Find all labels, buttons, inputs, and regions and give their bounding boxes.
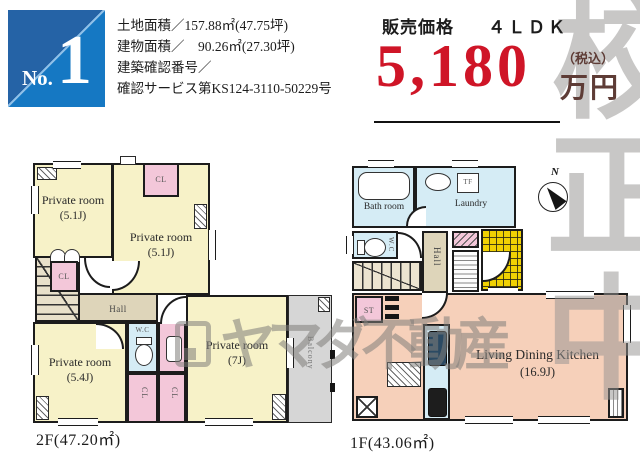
closet-2f-top: CL	[143, 163, 179, 197]
floor-2f-label: 2F(47.20㎡)	[36, 426, 121, 450]
underfloor-storage	[356, 396, 378, 418]
door-arc	[84, 258, 110, 288]
wc-label: W.C	[387, 237, 395, 252]
window	[452, 160, 478, 168]
hall-label: Hall	[432, 247, 442, 267]
closet-2f-mid-1: CL	[127, 373, 158, 423]
toilet-room-1f: W.C	[352, 231, 398, 259]
toilet-icon	[135, 344, 153, 366]
compass-needle	[541, 183, 566, 210]
confirmation-service-no: 確認サービス第KS124-3110-50229号	[117, 78, 332, 99]
closet-label: CL	[52, 272, 76, 281]
floor-plan-1f: Bath room TF Laundry W.C Hall	[345, 160, 637, 428]
price-tax-note: （税込）	[562, 48, 614, 67]
window	[53, 161, 81, 169]
stairs-1f	[352, 261, 422, 291]
room-b-label: Private room (5.1J)	[112, 230, 210, 261]
tf-label: TF	[458, 178, 478, 186]
closet-label: CL	[140, 387, 149, 399]
price-unit: 万円	[560, 66, 620, 106]
folding-door-icon	[385, 296, 399, 323]
st-label: ST	[357, 306, 381, 315]
closet-label: CL	[145, 175, 177, 184]
cabinet	[608, 388, 624, 418]
door-arc	[160, 296, 186, 324]
balcony-tick	[330, 383, 335, 392]
header-divider	[374, 121, 560, 123]
closet-2f-mid-2: CL	[158, 373, 186, 423]
ldk-label: Living Dining Kitchen (16.9J)	[455, 346, 620, 380]
room-d-label: Private room (7J)	[186, 338, 288, 369]
pillar-hatch-b	[194, 204, 207, 229]
pipe-bump	[120, 156, 136, 165]
laundry-label: Laundry	[431, 198, 511, 210]
pillar-hatch-balcony	[318, 297, 330, 312]
balcony-label: Balcony	[306, 336, 315, 370]
pillar-hatch-c	[36, 396, 49, 420]
property-info: 土地面積／157.88㎡(47.75坪) 建物面積／ 90.26㎡(27.30坪…	[117, 15, 332, 99]
washbasin-icon	[166, 336, 182, 362]
refrigerator-space	[387, 362, 421, 387]
toilet-room-2f: W.C	[127, 322, 158, 373]
window	[58, 418, 98, 426]
floor-plan-2f: CL Private room (5.1J) Private room (5.1…	[30, 160, 340, 428]
building-confirmation-no: 建築確認番号／	[117, 57, 332, 78]
badge-number: 1	[57, 26, 92, 96]
shoe-storage	[452, 250, 479, 292]
window	[286, 338, 294, 368]
window	[205, 418, 253, 426]
washroom-2f	[158, 322, 186, 373]
toilet-icon	[364, 238, 386, 257]
door-arc	[398, 232, 422, 258]
pillar-hatch-d	[272, 394, 286, 420]
building-area: 建物面積／ 90.26㎡(27.30坪)	[117, 36, 332, 57]
storage-st: ST	[355, 296, 383, 323]
land-area: 土地面積／157.88㎡(47.75坪)	[117, 15, 332, 36]
hall-label: Hall	[80, 304, 156, 314]
bath-room: Bath room	[352, 166, 415, 228]
price-amount: 5,180	[376, 36, 531, 96]
closet-entrance	[452, 231, 479, 248]
compass	[538, 182, 568, 212]
window	[546, 291, 594, 299]
bath-label: Bath room	[359, 201, 409, 213]
closet-label: CL	[170, 387, 179, 399]
wc-label: W.C	[129, 326, 156, 334]
window	[465, 416, 513, 424]
washer-icon: TF	[457, 173, 479, 193]
closet-2f-stairs: CL	[50, 261, 78, 292]
kitchen-sink-icon	[428, 331, 447, 366]
balcony-2f: Balcony	[288, 295, 332, 423]
window	[623, 305, 631, 343]
floor-1f-label: 1F(43.06㎡)	[350, 429, 435, 452]
bathtub-icon	[358, 172, 410, 200]
window	[208, 230, 216, 260]
window	[31, 345, 39, 375]
window	[368, 160, 394, 168]
badge-prefix: No.	[22, 66, 53, 91]
balcony-tick	[330, 350, 335, 359]
room-a-label: Private room (5.1J)	[33, 193, 113, 224]
number-badge: No. 1	[8, 10, 105, 107]
hall-2f: Hall	[78, 293, 158, 322]
washbasin-icon	[425, 173, 451, 191]
room-c-label: Private room (5.4J)	[33, 355, 127, 386]
laundry-room: TF Laundry	[415, 166, 516, 228]
window	[346, 236, 354, 254]
window	[31, 186, 39, 214]
stove-icon	[428, 388, 447, 417]
window	[538, 416, 590, 424]
flyer-canvas: 校 正 中 ヤマダ不動産 No. 1 土地面積／157.88㎡(47.75坪) …	[0, 0, 640, 452]
kitchen-counter	[423, 324, 450, 420]
compass-n-label: N	[551, 166, 559, 178]
hall-1f: Hall	[422, 231, 448, 293]
